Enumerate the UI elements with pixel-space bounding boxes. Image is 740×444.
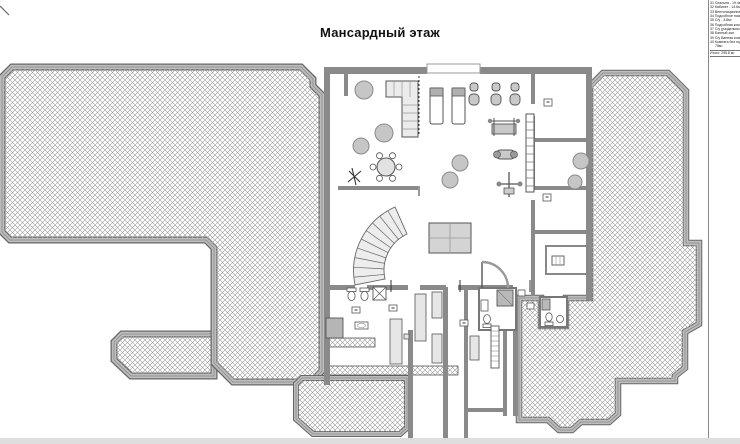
barbell-rack [497, 172, 523, 197]
sink [481, 300, 488, 311]
billiard-table [429, 223, 471, 253]
treadmill [430, 88, 465, 124]
bidet [360, 288, 369, 301]
wall-bars [526, 114, 534, 192]
ventilation-room [546, 246, 587, 274]
sink [557, 316, 564, 323]
legend-total: Итого: 295.8 м² [710, 50, 740, 57]
door-arc [482, 262, 508, 288]
left-roof-terrace [114, 334, 214, 376]
floor-plan-page: Мансардный этаж [0, 0, 740, 444]
toilet [347, 288, 356, 301]
bathroom-right [540, 297, 567, 327]
staircase [354, 207, 407, 285]
dormer-window [427, 64, 480, 73]
shower-tray [326, 318, 343, 338]
bottom-roof [296, 378, 407, 434]
exercise-bike [469, 83, 520, 105]
dining-table [370, 153, 402, 182]
room-legend: 31 Спальня - 19.4м² 32 Кабинет - 14.6м² … [710, 1, 740, 57]
weight-bench [494, 150, 518, 159]
easel [348, 168, 361, 185]
sheet-corner-mark [0, 6, 9, 15]
toilet [545, 313, 553, 326]
sink [355, 322, 368, 329]
radiator [491, 326, 499, 368]
sheet-bottom-edge [0, 438, 740, 444]
bench-press [488, 118, 520, 136]
shower-tray [542, 299, 550, 310]
legend-item: 78м² [710, 44, 740, 48]
toilet [483, 315, 491, 328]
washing-machine [373, 287, 386, 300]
floor-plan-drawing [0, 0, 740, 444]
bathroom-center [479, 288, 516, 330]
sheet-frame-line [708, 0, 709, 444]
